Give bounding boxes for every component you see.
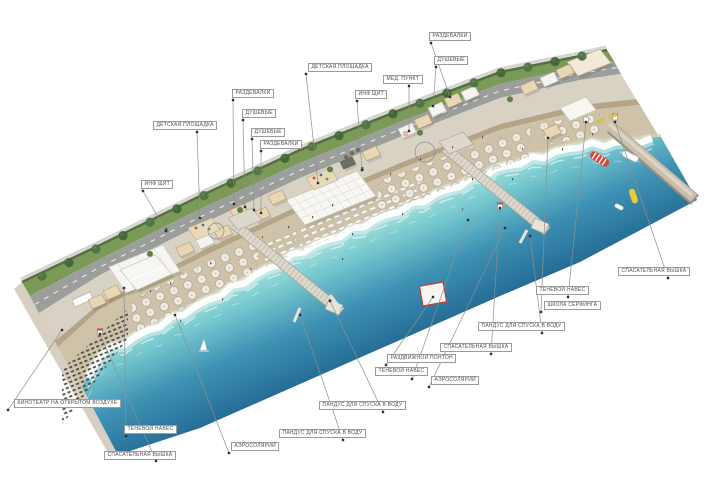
- masterplan-rendering: [0, 0, 720, 480]
- page: РАЗДЕВАЛКИДУШЕВЫЕДЕТСКАЯ ПЛОЩАДКАМЕД. ПУ…: [0, 0, 720, 480]
